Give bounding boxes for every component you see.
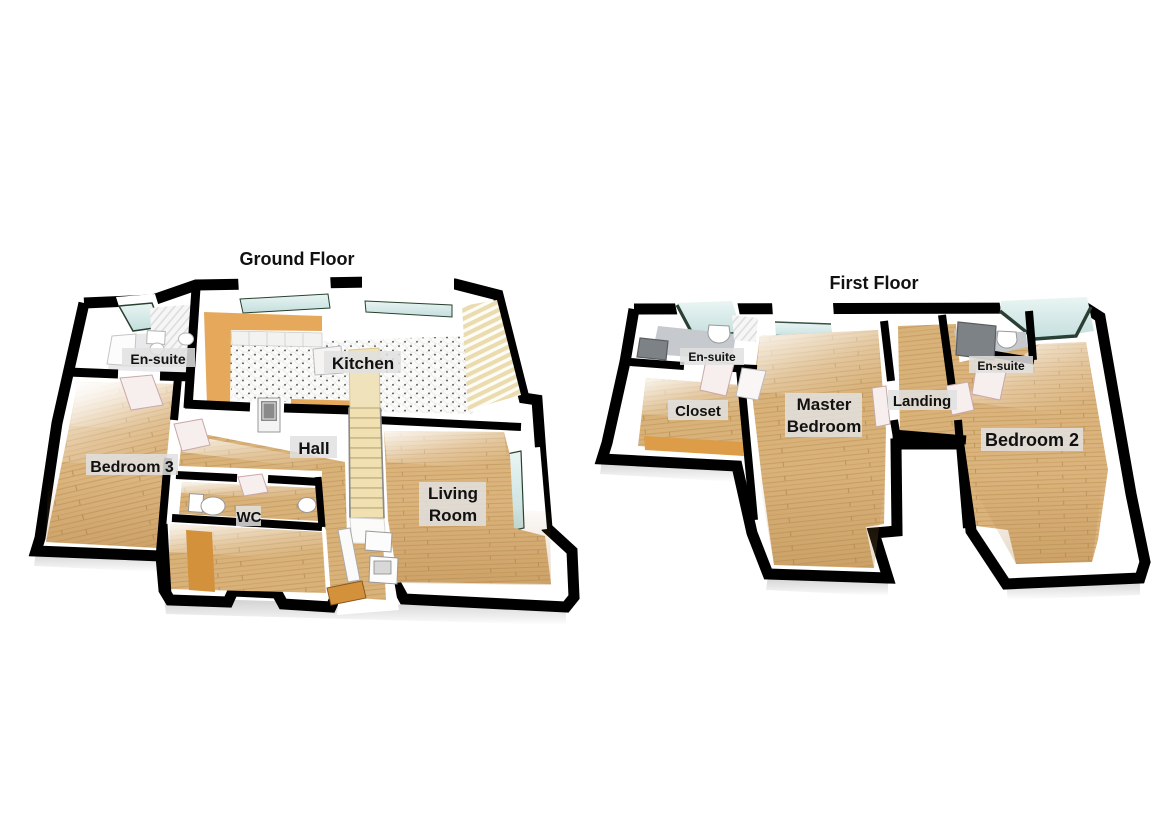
- svg-text:En-suite: En-suite: [977, 359, 1025, 373]
- svg-text:Living: Living: [428, 484, 478, 503]
- svg-text:Bedroom: Bedroom: [787, 417, 862, 436]
- svg-text:Kitchen: Kitchen: [332, 354, 394, 373]
- svg-text:Bedroom 3: Bedroom 3: [90, 459, 174, 476]
- svg-text:Room: Room: [429, 506, 477, 525]
- svg-text:WC: WC: [237, 509, 262, 526]
- svg-text:First Floor: First Floor: [830, 273, 919, 293]
- svg-text:Landing: Landing: [893, 393, 951, 410]
- svg-text:Master: Master: [797, 395, 852, 414]
- svg-text:En-suite: En-suite: [688, 350, 736, 364]
- svg-text:Closet: Closet: [675, 403, 721, 420]
- svg-text:Ground Floor: Ground Floor: [240, 249, 355, 269]
- svg-text:En-suite: En-suite: [130, 351, 185, 367]
- svg-text:Bedroom 2: Bedroom 2: [985, 430, 1079, 450]
- svg-text:Hall: Hall: [298, 439, 329, 458]
